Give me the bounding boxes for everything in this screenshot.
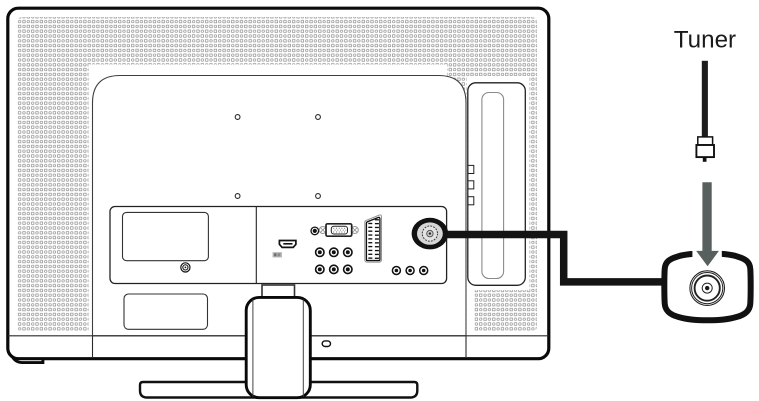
svg-text:Tuner: Tuner <box>674 26 736 53</box>
